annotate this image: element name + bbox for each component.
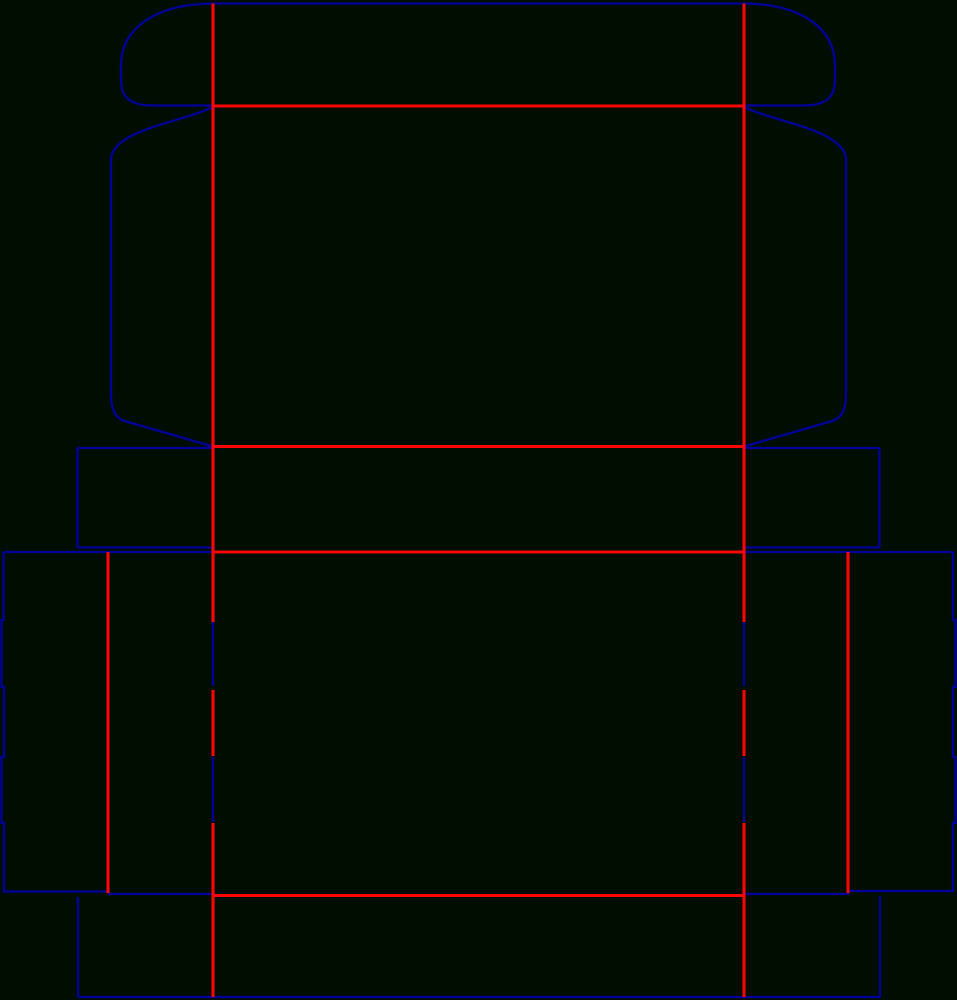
dieline-svg [0, 0, 957, 1000]
cut-path [850, 552, 956, 891]
cut-path [744, 107, 846, 447]
cut-path [111, 107, 213, 447]
cut-path [2, 552, 108, 892]
cut-path [121, 4, 213, 106]
dieline-canvas [0, 0, 957, 1000]
cut-path [744, 4, 835, 106]
